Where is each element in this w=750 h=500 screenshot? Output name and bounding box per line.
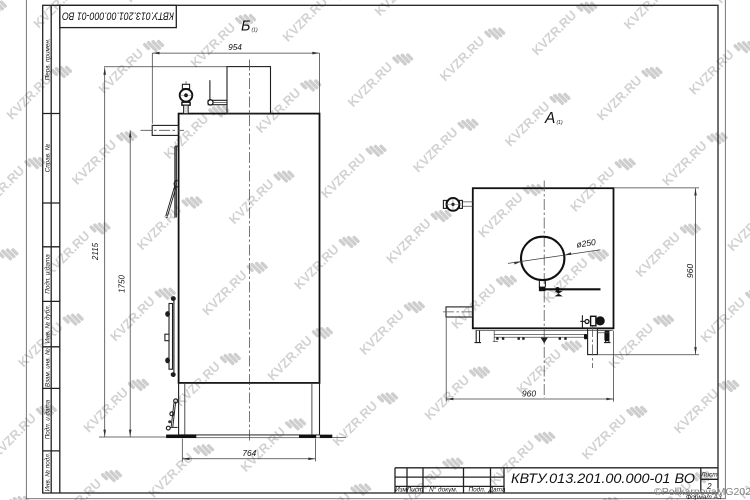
svg-text:(1): (1) bbox=[557, 120, 563, 126]
svg-text:Инв. № дубл.: Инв. № дубл. bbox=[44, 305, 52, 344]
svg-text:1750: 1750 bbox=[117, 275, 126, 293]
svg-text:Инв. № подл.: Инв. № подл. bbox=[44, 452, 52, 491]
svg-text:960: 960 bbox=[522, 389, 536, 399]
svg-text:N° докум.: N° докум. bbox=[429, 486, 457, 494]
svg-text:Изм: Изм bbox=[395, 487, 407, 494]
svg-text:Лист: Лист bbox=[700, 472, 718, 479]
svg-text:Взам. инв. №: Взам. инв. № bbox=[45, 348, 52, 387]
svg-text:Лист: Лист bbox=[406, 487, 424, 494]
svg-text:Справ. №: Справ. № bbox=[45, 144, 52, 173]
svg-text:Дата: Дата bbox=[488, 487, 506, 494]
svg-text:КВТУ.013.201.00.000-01 ВО: КВТУ.013.201.00.000-01 ВО bbox=[62, 10, 174, 22]
svg-text:2115: 2115 bbox=[91, 242, 100, 261]
svg-text:А: А bbox=[544, 110, 555, 127]
svg-text:Подп. и дата: Подп. и дата bbox=[44, 254, 52, 294]
svg-text:Б: Б bbox=[241, 19, 250, 35]
svg-text:960: 960 bbox=[685, 264, 695, 278]
svg-text:Подп.: Подп. bbox=[468, 486, 485, 494]
svg-text:764: 764 bbox=[242, 448, 256, 458]
svg-text:КВТУ.013.201.00.000-01 ВО: КВТУ.013.201.00.000-01 ВО bbox=[511, 471, 696, 486]
svg-text:954: 954 bbox=[228, 42, 242, 52]
svg-text:(1): (1) bbox=[252, 28, 258, 34]
svg-text:Формат А3: Формат А3 bbox=[686, 494, 722, 500]
svg-text:Подп. и дата: Подп. и дата bbox=[44, 399, 52, 439]
svg-text:Перв. примен.: Перв. примен. bbox=[45, 38, 52, 80]
